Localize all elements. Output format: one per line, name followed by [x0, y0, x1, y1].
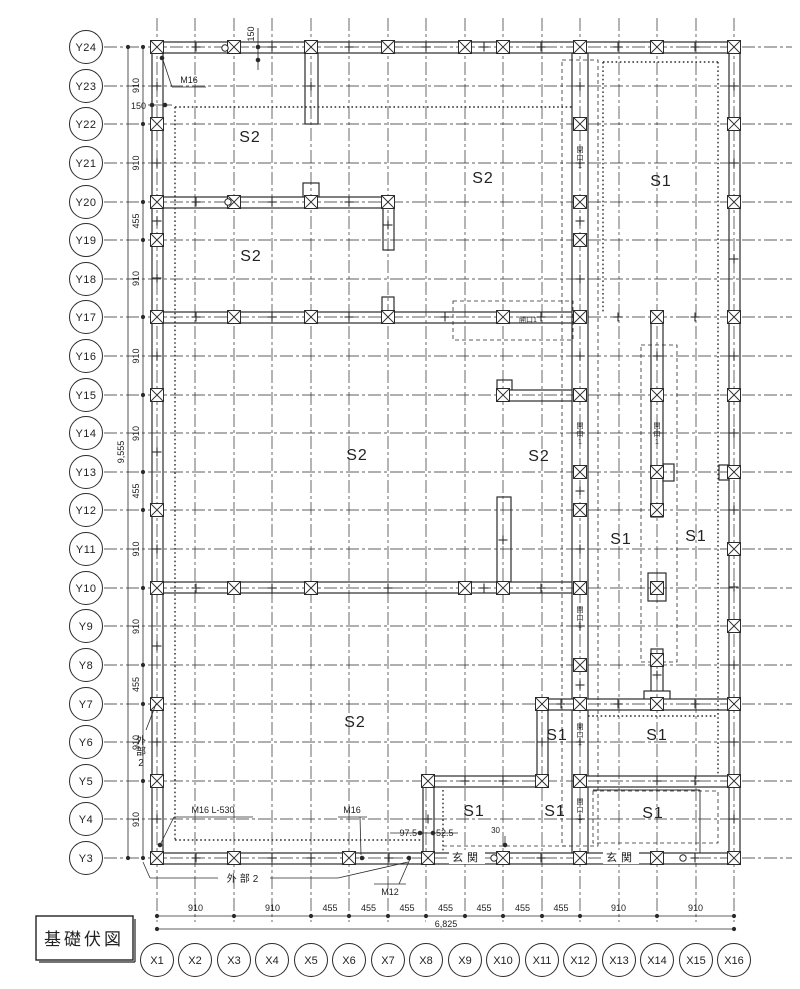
anchor-bolt-icon	[151, 41, 164, 54]
anchor-bolt-icon	[151, 504, 164, 517]
dim-tick	[501, 914, 505, 918]
anchor-bolt-icon	[574, 311, 587, 324]
dim-tick	[424, 914, 428, 918]
anchor-bolt-icon	[151, 311, 164, 324]
anchor-bolt-icon	[574, 698, 587, 711]
anchor-bolt-icon	[574, 504, 587, 517]
anchor-bolt-icon	[228, 582, 241, 595]
leader-line	[163, 60, 172, 87]
anchor-bolt-icon	[536, 775, 549, 788]
annotation-text: 玄関	[452, 850, 482, 864]
anchor-bolt-icon	[151, 582, 164, 595]
y-axis-bubble-y8: Y8	[70, 649, 103, 682]
axis-bubble-label: Y4	[79, 814, 93, 826]
anchor-bolt-icon	[728, 118, 741, 131]
x-axis-bubble-x10: X10	[487, 944, 520, 977]
anchor-bolt-icon	[728, 543, 741, 556]
x-axis-bubble-x4: X4	[256, 944, 289, 977]
anchor-bolt-icon	[728, 196, 741, 209]
anchor-bolt-icon	[574, 234, 587, 247]
annotation-text: 52.5	[436, 828, 454, 838]
anchor-bolt-icon	[728, 311, 741, 324]
axis-bubble-label: Y10	[75, 583, 96, 595]
dim-value: 455	[361, 903, 376, 913]
dim-value: 455	[322, 903, 337, 913]
dim-tick	[141, 702, 145, 706]
y-axis-bubble-y23: Y23	[70, 70, 103, 103]
axis-bubble-label: X5	[304, 955, 317, 967]
anchor-bolt-icon	[497, 389, 510, 402]
axis-bubble-label: X1	[150, 955, 163, 967]
y-axis-bubble-y5: Y5	[70, 765, 103, 798]
slab-type-label: S1	[642, 805, 664, 822]
anchor-bolt-icon	[382, 196, 395, 209]
dim-value: 455	[553, 903, 568, 913]
dim-value: 455	[515, 903, 530, 913]
axis-bubble-label: X12	[570, 955, 590, 967]
dim-tick	[732, 927, 736, 931]
y-axis-bubble-y18: Y18	[70, 263, 103, 296]
bolt-plus-icon	[614, 313, 623, 322]
x-axis-bubble-x9: X9	[449, 944, 482, 977]
anchor-bolt-icon	[422, 852, 435, 865]
dim-tick	[141, 45, 145, 49]
x-axis-bubble-x6: X6	[333, 944, 366, 977]
anchor-bolt-icon	[728, 698, 741, 711]
x-axis-bubble-x16: X16	[718, 944, 751, 977]
anchor-bolt-icon	[151, 698, 164, 711]
foundation-wall	[537, 699, 740, 710]
anchor-bolt-icon	[728, 775, 741, 788]
anchor-bolt-icon	[459, 41, 472, 54]
x-axis-bubble-x12: X12	[564, 944, 597, 977]
dim-value: 910	[131, 155, 141, 170]
x-axis-bubble-x11: X11	[526, 944, 559, 977]
slab-type-label: S1	[610, 531, 632, 548]
axis-bubble-label: X2	[188, 955, 201, 967]
x-axis-bubble-x15: X15	[680, 944, 713, 977]
x-axis-bubble-x1: X1	[141, 944, 174, 977]
y-axis-bubble-y17: Y17	[70, 301, 103, 334]
slab-type-label: S2	[240, 248, 262, 265]
dim-tick	[232, 914, 236, 918]
slab-type-label: S2	[528, 448, 550, 465]
axis-bubble-label: X15	[686, 955, 706, 967]
dim-tick	[578, 914, 582, 918]
axis-bubble-label: X7	[381, 955, 394, 967]
anchor-bolt-icon	[459, 582, 472, 595]
dim-value: 910	[131, 619, 141, 634]
axis-bubble-label: Y16	[75, 351, 96, 363]
axis-bubble-label: Y6	[79, 737, 93, 749]
annotation-text: 外部2	[136, 735, 146, 769]
anchor-bolt-icon	[651, 389, 664, 402]
anchor-bolt-icon	[536, 698, 549, 711]
hold-down-ring-icon	[491, 855, 497, 861]
foundation-wall	[663, 464, 674, 481]
drawing-title-box: 基礎伏図	[36, 916, 135, 962]
dim-tick	[141, 663, 145, 667]
dim-tick	[126, 45, 130, 49]
anchor-bolt-icon	[574, 196, 587, 209]
dim-tick	[141, 238, 145, 242]
anchor-bolt-icon	[651, 654, 664, 667]
anchor-bolt-icon	[651, 582, 664, 595]
anchor-bolt-icon	[651, 504, 664, 517]
dim-value: 455	[131, 213, 141, 228]
y-axis-bubble-y9: Y9	[70, 610, 103, 643]
x-axis-bubble-x8: X8	[410, 944, 443, 977]
foundation-plan-drawing: 9109104559109109104559109104559109109,55…	[0, 0, 800, 989]
slab-type-label: S1	[463, 803, 485, 820]
annotation-text: M16	[180, 75, 198, 85]
annotation-text: 150	[246, 26, 256, 41]
x-axis-bubble-x13: X13	[603, 944, 636, 977]
dim-value: 455	[131, 677, 141, 692]
hold-down-ring-icon	[680, 855, 686, 861]
y-axis-bubble-y14: Y14	[70, 417, 103, 450]
dim-value: 910	[131, 812, 141, 827]
axis-bubble-label: X11	[533, 955, 552, 967]
anchor-bolt-icon	[728, 620, 741, 633]
anchor-bolt-icon	[497, 852, 510, 865]
annotation-text: 玄関	[606, 850, 636, 864]
anchor-bolt-icon	[228, 311, 241, 324]
axis-bubble-label: X13	[609, 955, 629, 967]
dim-tick	[141, 508, 145, 512]
foundation-wall	[497, 497, 511, 588]
dim-value: 910	[131, 348, 141, 363]
anchor-bolt-icon	[497, 41, 510, 54]
annotation-text: M16 L-530	[191, 805, 234, 815]
anchor-bolt-icon	[574, 582, 587, 595]
dim-tick	[732, 914, 736, 918]
dim-tick	[141, 779, 145, 783]
axis-bubble-label: X14	[647, 955, 667, 967]
dim-tick	[126, 856, 130, 860]
axis-bubble-label: X10	[493, 955, 513, 967]
dim-tick	[386, 914, 390, 918]
x-axis-bubble-x5: X5	[295, 944, 328, 977]
anchor-bolt-icon	[151, 118, 164, 131]
dim-tick	[141, 393, 145, 397]
dim-value: 910	[688, 903, 703, 913]
anchor-bolt-icon	[228, 852, 241, 865]
bolt-dot-icon	[360, 856, 365, 861]
axis-bubble-label: Y12	[75, 505, 96, 517]
axis-bubble-label: Y8	[79, 660, 93, 672]
anchor-bolt-icon	[151, 234, 164, 247]
anchor-bolt-icon	[343, 852, 356, 865]
axis-bubble-label: Y5	[79, 776, 93, 788]
slab-type-label: S1	[646, 727, 668, 744]
dim-value: 910	[131, 78, 141, 93]
y-axis-bubble-y10: Y10	[70, 572, 103, 605]
y-axis-bubble-y6: Y6	[70, 726, 103, 759]
x-axis-bubble-x3: X3	[218, 944, 251, 977]
axis-bubble-label: Y3	[79, 853, 93, 865]
axis-bubble-label: Y17	[75, 312, 96, 324]
dim-tick	[347, 914, 351, 918]
anchor-bolt-icon	[728, 389, 741, 402]
vent-opening-label: 開口1	[519, 316, 537, 324]
anchor-bolt-icon	[574, 466, 587, 479]
hold-down-ring-icon	[225, 199, 231, 205]
dim-tick	[141, 470, 145, 474]
bolt-dot-icon	[407, 856, 412, 861]
dim-tick	[540, 914, 544, 918]
dim-value: 910	[131, 426, 141, 441]
anchor-bolt-icon	[228, 41, 241, 54]
anchor-bolt-icon	[151, 775, 164, 788]
anchor-bolt-icon	[497, 582, 510, 595]
y-axis-bubble-y11: Y11	[70, 533, 103, 566]
anchor-bolt-icon	[151, 196, 164, 209]
annotation-layer: 開口1開口1開口1開口1開口1開口1開口1S2S2S1S2S2S2S1S1S2S…	[131, 26, 707, 897]
dim-value: 910	[188, 903, 203, 913]
y-axis-bubble-y24: Y24	[70, 31, 103, 64]
dim-value: 910	[131, 541, 141, 556]
axis-bubble-label: Y24	[75, 42, 96, 54]
axis-bubble-label: Y21	[75, 158, 96, 170]
foundation-wall	[163, 582, 572, 593]
axis-bubble-label: X16	[724, 955, 744, 967]
y-axis-bubble-y3: Y3	[70, 842, 103, 875]
foundation-wall	[423, 776, 548, 787]
dim-tick	[155, 927, 159, 931]
axis-bubble-label: Y23	[75, 81, 96, 93]
axis-bubble-label: Y20	[75, 197, 96, 209]
slab-type-label: S2	[346, 447, 368, 464]
axis-bubble-label: Y19	[75, 235, 96, 247]
dim-value: 455	[476, 903, 491, 913]
anchor-bolt-icon	[305, 311, 318, 324]
y-axis-bubble-y15: Y15	[70, 379, 103, 412]
axis-bubble-label: X4	[265, 955, 278, 967]
dim-tick	[141, 856, 145, 860]
dim-value: 910	[611, 903, 626, 913]
anchor-bolt-icon	[651, 852, 664, 865]
x-axis-bubble-x2: X2	[179, 944, 212, 977]
y-axis-bubble-y7: Y7	[70, 688, 103, 721]
dim-tick	[141, 315, 145, 319]
bolt-plus-icon	[691, 313, 700, 322]
anchor-bolt-icon	[305, 41, 318, 54]
y-axis-bubble-y4: Y4	[70, 803, 103, 836]
anchor-bolt-icon	[651, 698, 664, 711]
dim-tick	[463, 914, 467, 918]
y-axis-bubble-y13: Y13	[70, 456, 103, 489]
drawing-title: 基礎伏図	[44, 930, 124, 949]
anchor-bolt-icon	[574, 389, 587, 402]
anchor-bolt-icon	[382, 41, 395, 54]
axis-bubble-label: Y18	[75, 274, 96, 286]
axis-bubble-label: X8	[419, 955, 432, 967]
y-axis-bubble-y22: Y22	[70, 108, 103, 141]
dim-tick	[655, 914, 659, 918]
anchor-bolt-icon	[574, 775, 587, 788]
anchor-bolt-icon	[574, 41, 587, 54]
annotation-text: M12	[381, 887, 399, 897]
axis-bubble-label: Y7	[79, 699, 93, 711]
axis-bubble-label: Y9	[79, 621, 93, 633]
anchor-bolt-icon	[151, 389, 164, 402]
anchor-bolt-icon	[651, 466, 664, 479]
anchor-bolt-icon	[728, 41, 741, 54]
anchor-bolt-icon	[728, 466, 741, 479]
dim-value: 910	[131, 271, 141, 286]
slab-type-label: S1	[650, 173, 672, 190]
y-axis-bubble-y21: Y21	[70, 147, 103, 180]
annotation-text: M16	[343, 805, 361, 815]
dim-tick	[141, 586, 145, 590]
axis-bubble-label: Y14	[75, 428, 96, 440]
dim-total-left: 9,555	[116, 441, 126, 464]
bolt-dot-icon	[160, 56, 165, 61]
anchor-bolt-icon	[728, 852, 741, 865]
y-axis-bubble-y12: Y12	[70, 494, 103, 527]
axis-bubble-label: X6	[342, 955, 355, 967]
y-axis-bubble-y20: Y20	[70, 186, 103, 219]
anchor-bolt-icon	[574, 659, 587, 672]
leader-line	[360, 817, 361, 855]
dim-tick	[309, 914, 313, 918]
dim-tick	[141, 200, 145, 204]
dim-tick	[141, 122, 145, 126]
y-axis-bubble-y16: Y16	[70, 340, 103, 373]
slab-type-label: S2	[344, 714, 366, 731]
dim-value: 455	[438, 903, 453, 913]
anchor-bolt-icon	[151, 852, 164, 865]
slab-type-label: S1	[544, 803, 566, 820]
anchor-bolt-icon	[305, 582, 318, 595]
anchor-bolt-icon	[497, 311, 510, 324]
slab-type-label: S2	[239, 129, 261, 146]
annotation-text: 150	[131, 101, 146, 111]
dim-value: 455	[399, 903, 414, 913]
dim-value: 455	[131, 483, 141, 498]
x-axis-bubble-x14: X14	[641, 944, 674, 977]
anchor-bolt-icon	[574, 118, 587, 131]
annotation-text: 97.5	[399, 828, 417, 838]
anchor-bolt-icon	[305, 196, 318, 209]
dim-total-bottom: 6,825	[435, 919, 458, 929]
anchor-bolt-icon	[382, 311, 395, 324]
axis-bubble-label: X9	[458, 955, 471, 967]
slab-type-label: S1	[546, 727, 568, 744]
leader-line	[143, 862, 150, 878]
x-axis-bubble-x7: X7	[372, 944, 405, 977]
footing-outline-layer	[175, 60, 718, 853]
slab-type-label: S1	[685, 528, 707, 545]
axis-bubble-label: Y22	[75, 119, 96, 131]
axis-bubble-label: Y15	[75, 390, 96, 402]
anchor-bolt-icon	[422, 775, 435, 788]
dim-tick	[155, 914, 159, 918]
y-axis-bubble-y19: Y19	[70, 224, 103, 257]
anchor-bolt-icon	[651, 41, 664, 54]
axis-bubble-label: Y13	[75, 467, 96, 479]
annotation-text: 外部2	[227, 872, 262, 885]
slab-type-label: S2	[472, 170, 494, 187]
foundation-plan-page: 9109104559109109104559109104559109109,55…	[0, 0, 800, 989]
annotation-text: 30	[491, 826, 500, 835]
axis-bubble-label: Y11	[76, 544, 96, 556]
axis-bubble-label: X3	[227, 955, 240, 967]
anchor-bolt-icon	[574, 852, 587, 865]
anchor-bolt-icon	[651, 311, 664, 324]
dim-value: 910	[265, 903, 280, 913]
hold-down-ring-icon	[222, 45, 228, 51]
